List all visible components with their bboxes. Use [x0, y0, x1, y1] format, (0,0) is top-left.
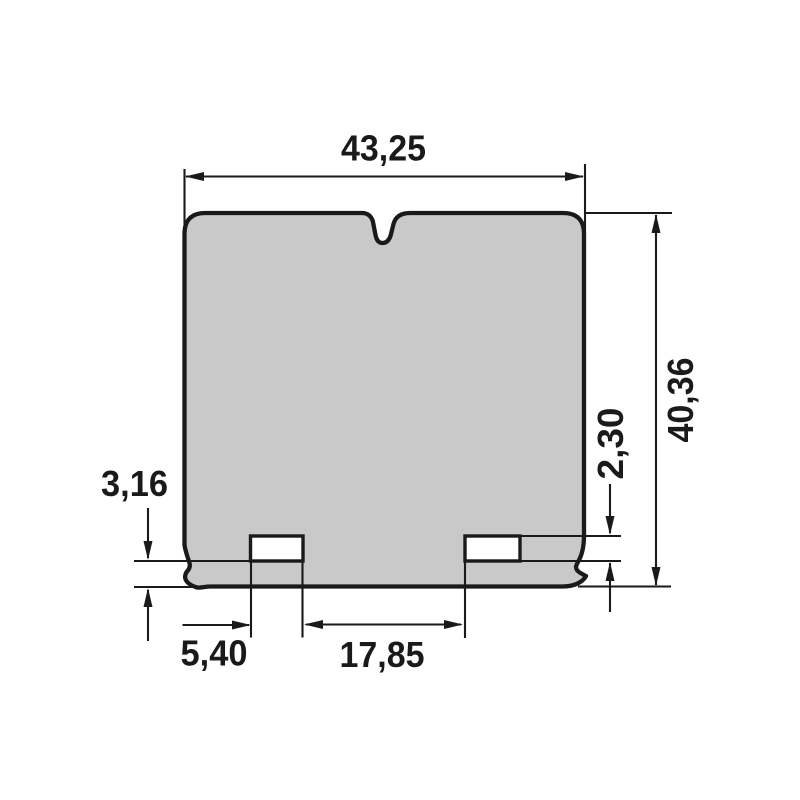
svg-text:40,36: 40,36 — [660, 358, 701, 443]
svg-text:2,30: 2,30 — [590, 408, 631, 480]
svg-text:43,25: 43,25 — [341, 128, 426, 169]
svg-text:17,85: 17,85 — [340, 634, 425, 675]
svg-text:5,40: 5,40 — [181, 632, 248, 673]
svg-text:3,16: 3,16 — [101, 463, 168, 504]
